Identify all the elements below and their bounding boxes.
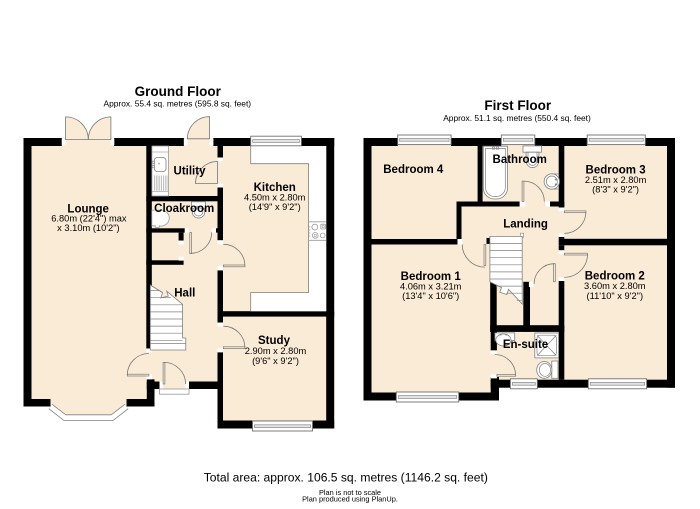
svg-text:Utility: Utility <box>174 165 207 177</box>
svg-text:Bathroom: Bathroom <box>493 154 547 166</box>
svg-text:Plan produced using PlanUp.: Plan produced using PlanUp. <box>302 495 398 504</box>
svg-text:(11'10" x 9'2"): (11'10" x 9'2") <box>587 291 644 301</box>
svg-text:Study: Study <box>258 335 291 347</box>
svg-text:4.50m x 2.80m: 4.50m x 2.80m <box>244 192 306 202</box>
svg-text:Bedroom 4: Bedroom 4 <box>383 164 444 176</box>
svg-text:x 3.10m (10'2"): x 3.10m (10'2") <box>57 223 119 233</box>
svg-text:Landing: Landing <box>503 219 548 231</box>
svg-text:(13'4" x 10'6"): (13'4" x 10'6") <box>402 291 459 301</box>
svg-text:En-suite: En-suite <box>503 339 548 351</box>
svg-text:First Floor: First Floor <box>484 98 551 113</box>
svg-text:(14'9" x 9'2"): (14'9" x 9'2") <box>249 202 301 212</box>
svg-text:2.51m x 2.80m: 2.51m x 2.80m <box>585 175 647 185</box>
svg-text:Approx. 51.1 sq. metres (550.4: Approx. 51.1 sq. metres (550.4 sq. feet) <box>443 113 591 123</box>
svg-text:4.06m x 3.21m: 4.06m x 3.21m <box>400 282 462 292</box>
svg-text:Total area: approx. 106.5 sq.: Total area: approx. 106.5 sq. metres (11… <box>204 471 488 485</box>
svg-text:Approx. 55.4 sq. metres (595.8: Approx. 55.4 sq. metres (595.8 sq. feet) <box>104 99 252 109</box>
svg-text:Ground Floor: Ground Floor <box>135 84 222 99</box>
svg-text:3.60m x 2.80m: 3.60m x 2.80m <box>584 281 646 291</box>
svg-text:(9'6" x 9'2"): (9'6" x 9'2") <box>252 356 299 366</box>
svg-text:(8'3" x 9'2"): (8'3" x 9'2") <box>592 185 639 195</box>
svg-text:Hall: Hall <box>174 287 195 299</box>
svg-text:2.90m x 2.80m: 2.90m x 2.80m <box>245 346 307 356</box>
svg-text:Cloakroom: Cloakroom <box>154 203 214 215</box>
